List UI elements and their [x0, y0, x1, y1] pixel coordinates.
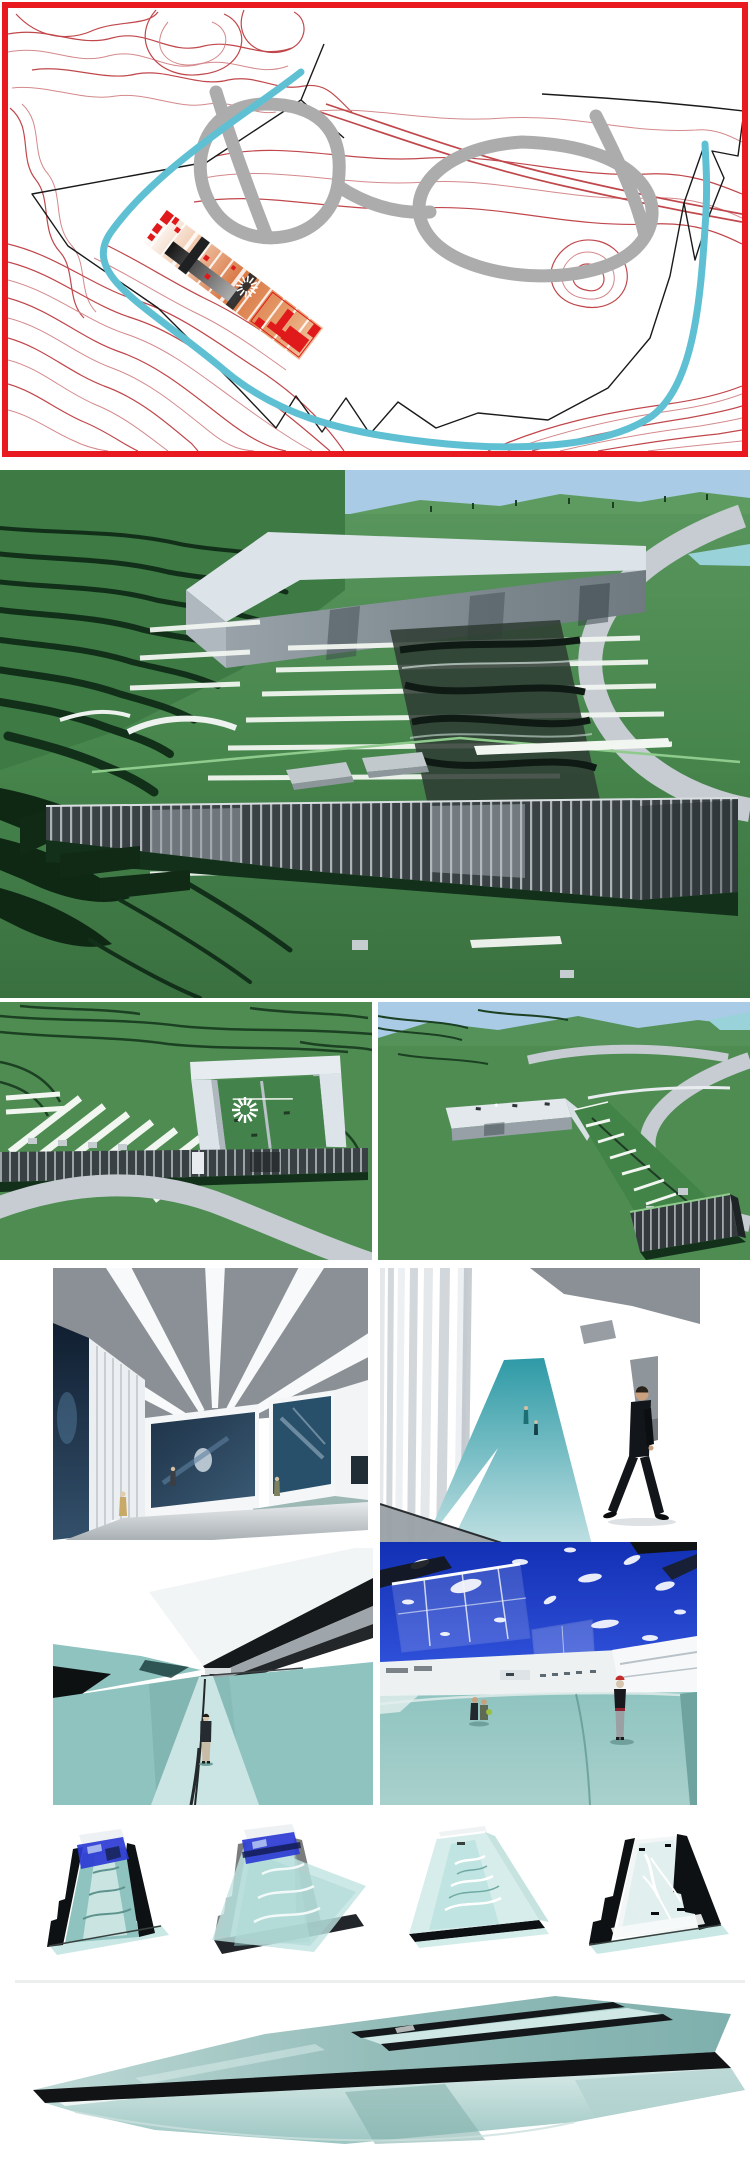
glass-wedge-render	[15, 1972, 745, 2160]
contour-lines	[8, 10, 742, 451]
section-3-drawing	[399, 1824, 557, 1957]
canal-white-render	[53, 1548, 373, 1805]
section-1-drawing	[43, 1825, 171, 1957]
artwork-wall-a	[145, 1404, 259, 1520]
site-plan-drawing	[8, 8, 742, 451]
figure-eight-loop	[200, 92, 652, 276]
aerial-left-render	[0, 1002, 372, 1260]
section-2-dr awing	[206, 1822, 371, 1957]
section-model-2	[206, 1822, 371, 1957]
corridor-interior-render	[380, 1268, 700, 1545]
aerial-left-panel	[0, 1002, 372, 1260]
u-building	[190, 1052, 346, 1158]
walking-man-figure	[603, 1386, 676, 1526]
canopy-bands	[149, 1548, 373, 1685]
person-figure	[534, 1420, 538, 1435]
gallery-interior-render	[53, 1268, 368, 1540]
section-model-1	[43, 1825, 171, 1957]
canal-white-panel	[53, 1548, 373, 1805]
hero-render	[0, 470, 750, 998]
glass-wedge-panel	[15, 1972, 745, 2160]
bowl-floor	[380, 1692, 697, 1805]
hero-render-panel	[0, 470, 750, 998]
section-model-4	[581, 1824, 741, 1957]
corridor-interior-panel	[380, 1268, 700, 1545]
person-figure	[524, 1406, 529, 1424]
site-plan-panel	[2, 2, 748, 457]
backdrop-line	[15, 1980, 745, 1983]
aerial-right-panel	[378, 1002, 750, 1260]
teal-ramp	[424, 1358, 592, 1545]
section-4-drawing	[581, 1824, 741, 1957]
gallery-interior-panel	[53, 1268, 368, 1540]
section-model-3	[399, 1824, 557, 1957]
canal-blue-render	[380, 1542, 697, 1805]
portfolio-board	[0, 0, 750, 2163]
dark-screen	[351, 1456, 368, 1484]
aerial-right-render	[378, 1002, 750, 1260]
canal-blue-panel	[380, 1542, 697, 1805]
